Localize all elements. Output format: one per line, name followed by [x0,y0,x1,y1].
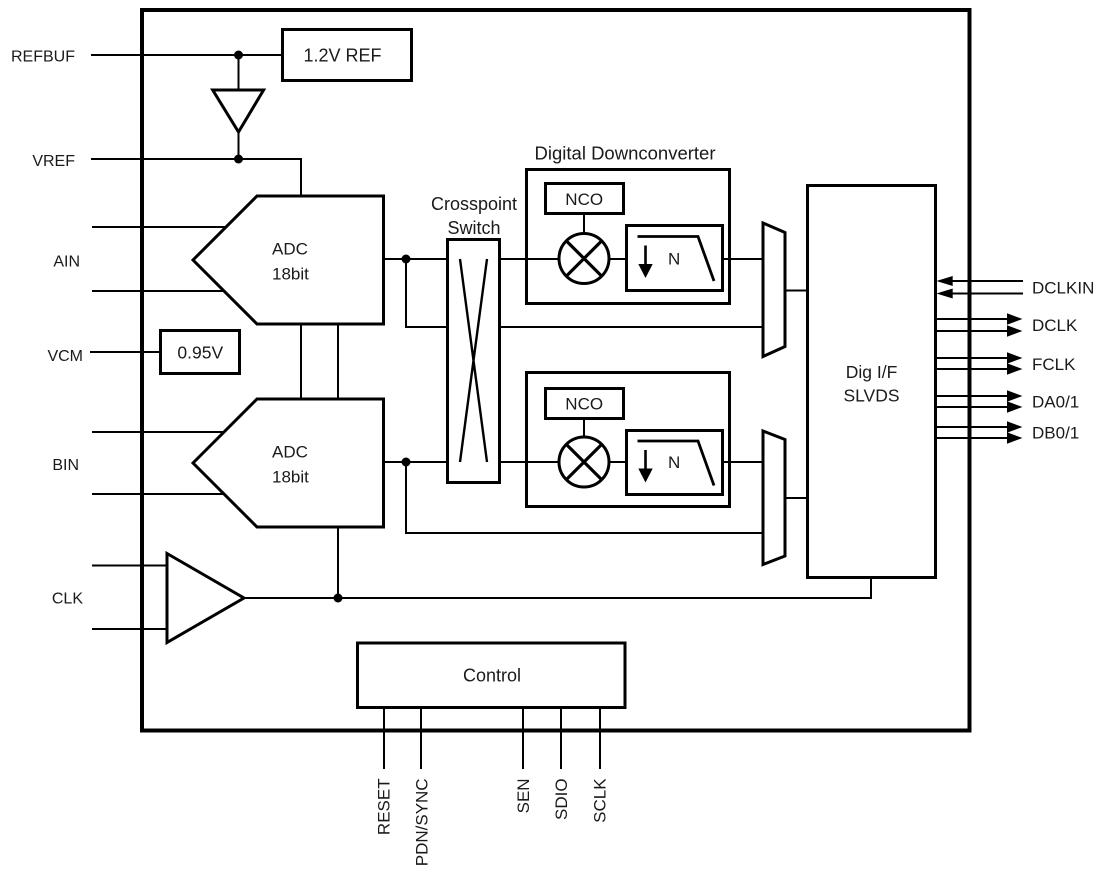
svg-text:ADC: ADC [272,443,308,462]
svg-text:SCLK: SCLK [591,778,610,823]
svg-text:SEN: SEN [514,778,533,813]
svg-text:1.2V REF: 1.2V REF [303,46,381,66]
svg-text:DA0/1: DA0/1 [1032,393,1079,412]
svg-text:ADC: ADC [272,240,308,259]
svg-text:0.95V: 0.95V [177,343,223,363]
svg-text:18bit: 18bit [272,265,309,284]
svg-text:PDN/SYNC: PDN/SYNC [412,778,431,866]
svg-text:Crosspoint: Crosspoint [431,194,517,214]
svg-text:18bit: 18bit [272,468,309,487]
svg-text:Digital Downconverter: Digital Downconverter [535,143,716,164]
svg-text:DCLKIN: DCLKIN [1032,279,1094,298]
svg-text:NCO: NCO [565,190,603,209]
svg-text:Dig I/F: Dig I/F [846,362,898,382]
svg-text:N: N [668,453,680,472]
svg-text:Control: Control [463,666,521,686]
svg-text:Switch: Switch [447,218,500,238]
svg-text:AIN: AIN [53,254,80,271]
svg-text:SLVDS: SLVDS [843,386,899,406]
svg-text:DB0/1: DB0/1 [1032,424,1079,443]
svg-text:VCM: VCM [47,348,83,365]
svg-text:CLK: CLK [52,591,83,608]
svg-text:VREF: VREF [32,153,75,170]
svg-text:RESET: RESET [375,778,394,835]
svg-text:DCLK: DCLK [1032,316,1078,335]
svg-text:NCO: NCO [565,395,603,414]
svg-text:BIN: BIN [52,457,79,474]
svg-text:N: N [668,250,680,269]
svg-text:FCLK: FCLK [1032,355,1076,374]
svg-text:REFBUF: REFBUF [11,49,75,66]
svg-text:SDIO: SDIO [552,778,571,820]
